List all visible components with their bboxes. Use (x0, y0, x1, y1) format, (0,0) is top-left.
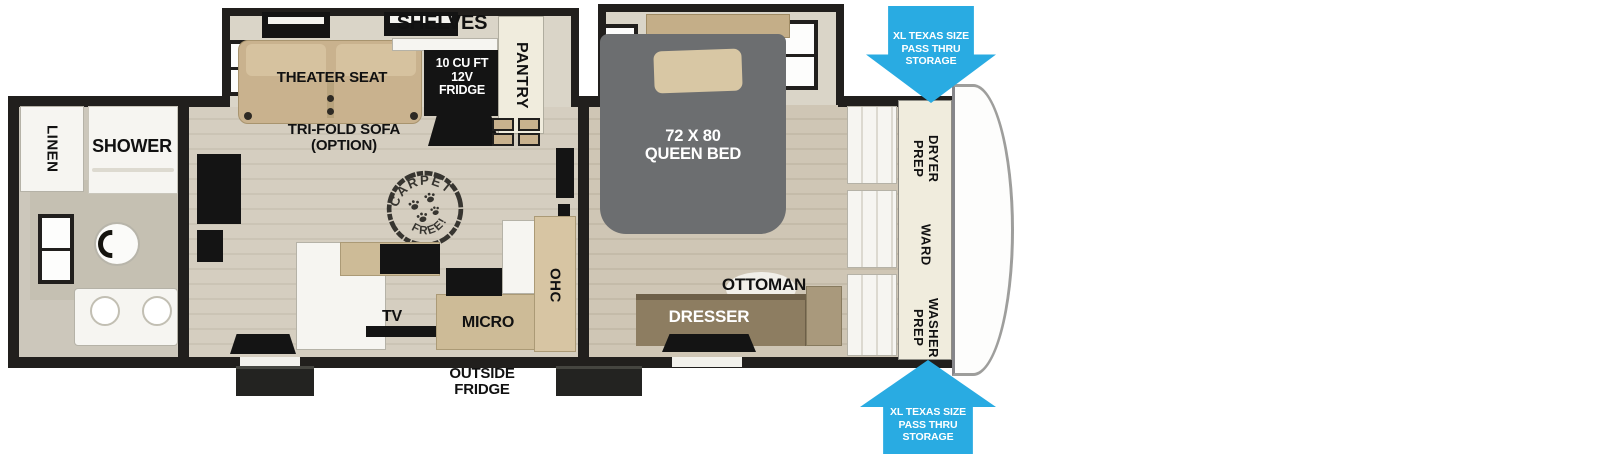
entry-step-living (236, 366, 314, 396)
bedroom-partition-wall (578, 96, 589, 368)
tri-fold-sofa-label: TRI-FOLD SOFA (OPTION) (274, 122, 414, 154)
cupholder (327, 95, 334, 102)
fridge-label: 10 CU FT 12V FRIDGE (424, 57, 500, 98)
shelves-label: SHELVES (390, 13, 494, 35)
pantry-label: PANTRY (500, 20, 542, 130)
shower-pan-line (92, 168, 174, 172)
tv-on-island (366, 326, 436, 337)
fridge-base (428, 116, 500, 146)
pantry-shelf-cell (518, 133, 540, 146)
bedroom-entry-door (672, 357, 742, 367)
ohc-label: OHC (536, 230, 574, 340)
pass-thru-top-label: XL TEXAS SIZE PASS THRU STORAGE (866, 30, 996, 68)
window-pane (42, 218, 70, 248)
entry-step-bedroom (556, 366, 642, 396)
washer-prep-label: WASHER PREP (902, 280, 948, 376)
wall-shelf-bracket (197, 230, 223, 262)
sink-right (142, 296, 172, 326)
sink-left (90, 296, 120, 326)
cupholder (327, 108, 334, 115)
recliner-button (410, 112, 418, 120)
wardrobe-cabinet-bottom (847, 274, 897, 356)
outside-fridge-label: OUTSIDE FRIDGE (428, 366, 536, 398)
pass-thru-bottom-label: XL TEXAS SIZE PASS THRU STORAGE (860, 406, 996, 444)
micro-label: MICRO (446, 314, 530, 331)
window-pane (42, 251, 70, 281)
cooktop (380, 244, 440, 274)
wall-mounted-tv (197, 154, 241, 224)
entertainment-wall-unit (556, 148, 574, 198)
bathroom-window (38, 214, 74, 284)
entry-door-mat (230, 334, 296, 354)
tv-label: TV (370, 308, 414, 325)
window-slit (268, 17, 324, 24)
rear-wall (8, 96, 19, 368)
shower-label: SHOWER (84, 137, 180, 156)
bedroom-nightstand (806, 286, 842, 346)
floorplan: LINEN SHOWER THEATER SEAT SHELVES 10 CU … (0, 0, 1600, 455)
wardrobe-cabinet-top (847, 106, 897, 184)
pantry-shelf-cell (492, 133, 514, 146)
linen-label: LINEN (24, 108, 80, 190)
window-pane (782, 57, 814, 87)
slideout-window-left (262, 12, 330, 38)
microwave (446, 268, 502, 296)
dryer-prep-label: DRYER PREP (902, 110, 948, 208)
pantry-shelf-cell (492, 118, 514, 131)
trailer-nose-cap (952, 84, 1014, 376)
kitchen-tall-cabinet (502, 220, 536, 294)
dresser-label: DRESSER (646, 308, 772, 326)
bed-pillow (653, 48, 742, 93)
bedroom-door-mat (662, 334, 756, 352)
theater-seat-label: THEATER SEAT (252, 70, 412, 86)
wardrobe-cabinet-middle (847, 190, 897, 268)
ward-label: WARD (902, 216, 948, 274)
recliner-button (244, 112, 252, 120)
pantry-shelf-cell (518, 118, 540, 131)
queen-bed-label: 72 X 80 QUEEN BED (608, 128, 778, 164)
